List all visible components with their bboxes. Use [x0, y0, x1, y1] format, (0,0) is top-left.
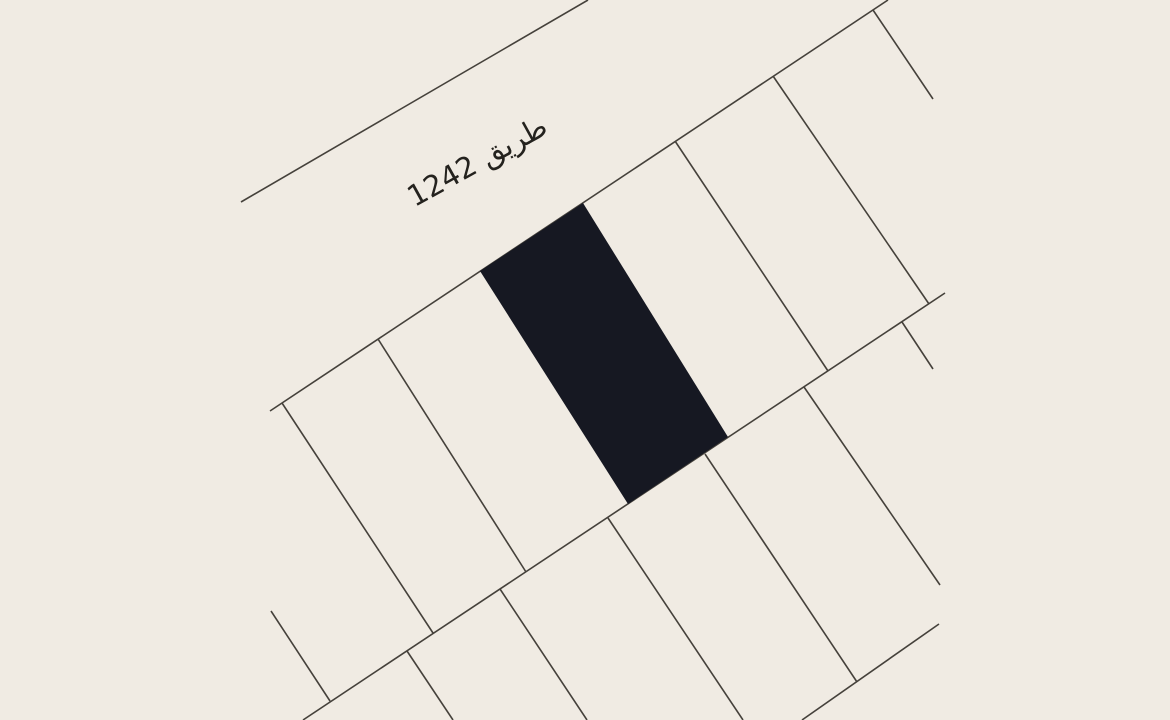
cadastral-map-view[interactable]: طريق 1242: [0, 0, 1170, 720]
map-canvas[interactable]: طريق 1242: [0, 0, 1170, 720]
